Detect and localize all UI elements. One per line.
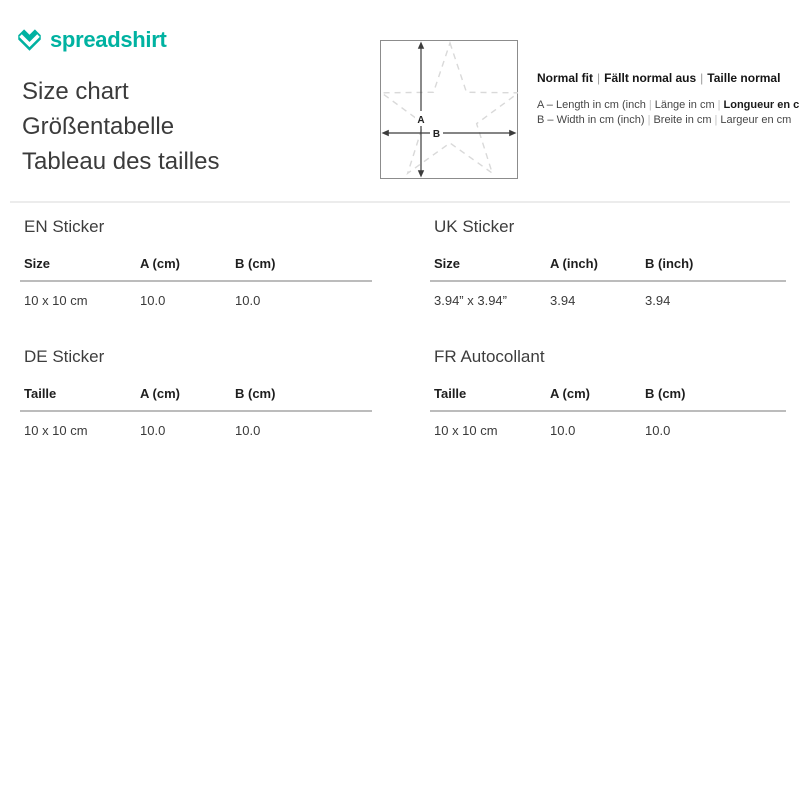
column-header-a: A (inch)	[546, 250, 641, 281]
a-value-cell: 10.0	[136, 411, 231, 438]
page-title-de: Größentabelle	[22, 109, 219, 144]
column-header-b: B (cm)	[231, 380, 372, 411]
page-title-fr: Tableau des tailles	[22, 144, 219, 179]
size-table-fr: FR Autocollant Taille A (cm) B (cm) 10 x…	[430, 347, 786, 438]
legend-row-a: A – Length in cm (inch|Länge in cm|Longu…	[537, 98, 793, 113]
heart-logo-icon	[16, 26, 43, 53]
column-header-size: Taille	[20, 380, 136, 411]
table-title-en: EN Sticker	[20, 217, 372, 237]
table-row: 10 x 10 cm 10.0 10.0	[20, 411, 372, 438]
fit-legend-heading: Normal fit|Fällt normal aus|Taille norma…	[537, 71, 793, 85]
b-value-cell: 10.0	[641, 411, 786, 438]
column-header-a: A (cm)	[136, 250, 231, 281]
table-header-row: Taille A (cm) B (cm)	[430, 380, 786, 411]
size-cell: 3.94” x 3.94”	[430, 281, 546, 308]
size-table-de: DE Sticker Taille A (cm) B (cm) 10 x 10 …	[20, 347, 372, 438]
a-value-cell: 3.94	[546, 281, 641, 308]
table-header-row: Taille A (cm) B (cm)	[20, 380, 372, 411]
size-table-en: EN Sticker Size A (cm) B (cm) 10 x 10 cm…	[20, 217, 372, 308]
column-header-size: Taille	[430, 380, 546, 411]
size-cell: 10 x 10 cm	[430, 411, 546, 438]
b-value-cell: 10.0	[231, 411, 372, 438]
page-title: Size chart Größentabelle Tableau des tai…	[22, 74, 219, 179]
section-divider	[10, 201, 790, 203]
table-title-fr: FR Autocollant	[430, 347, 786, 367]
column-header-a: A (cm)	[136, 380, 231, 411]
table-header-row: Size A (inch) B (inch)	[430, 250, 786, 281]
column-header-size: Size	[20, 250, 136, 281]
table-row: 3.94” x 3.94” 3.94 3.94	[430, 281, 786, 308]
table-row: 10 x 10 cm 10.0 10.0	[20, 281, 372, 308]
table-row: 10 x 10 cm 10.0 10.0	[430, 411, 786, 438]
product-diagram: A B	[380, 40, 518, 184]
column-header-b: B (cm)	[231, 250, 372, 281]
table-title-de: DE Sticker	[20, 347, 372, 367]
column-header-size: Size	[430, 250, 546, 281]
column-header-a: A (cm)	[546, 380, 641, 411]
table-title-uk: UK Sticker	[430, 217, 786, 237]
diagram-frame	[381, 41, 518, 179]
b-value-cell: 3.94	[641, 281, 786, 308]
fit-legend: Normal fit|Fällt normal aus|Taille norma…	[537, 71, 793, 128]
logo-wordmark: spreadshirt	[50, 27, 167, 53]
page-title-en: Size chart	[22, 74, 219, 109]
column-header-b: B (inch)	[641, 250, 786, 281]
legend-row-b: B – Width in cm (inch)|Breite in cm|Larg…	[537, 113, 793, 128]
spreadshirt-logo[interactable]: spreadshirt	[16, 26, 167, 53]
table-header-row: Size A (cm) B (cm)	[20, 250, 372, 281]
diagram-label-a: A	[417, 115, 424, 126]
a-value-cell: 10.0	[136, 281, 231, 308]
a-value-cell: 10.0	[546, 411, 641, 438]
b-value-cell: 10.0	[231, 281, 372, 308]
diagram-label-b: B	[433, 129, 440, 140]
size-table-uk: UK Sticker Size A (inch) B (inch) 3.94” …	[430, 217, 786, 308]
size-cell: 10 x 10 cm	[20, 411, 136, 438]
column-header-b: B (cm)	[641, 380, 786, 411]
size-cell: 10 x 10 cm	[20, 281, 136, 308]
